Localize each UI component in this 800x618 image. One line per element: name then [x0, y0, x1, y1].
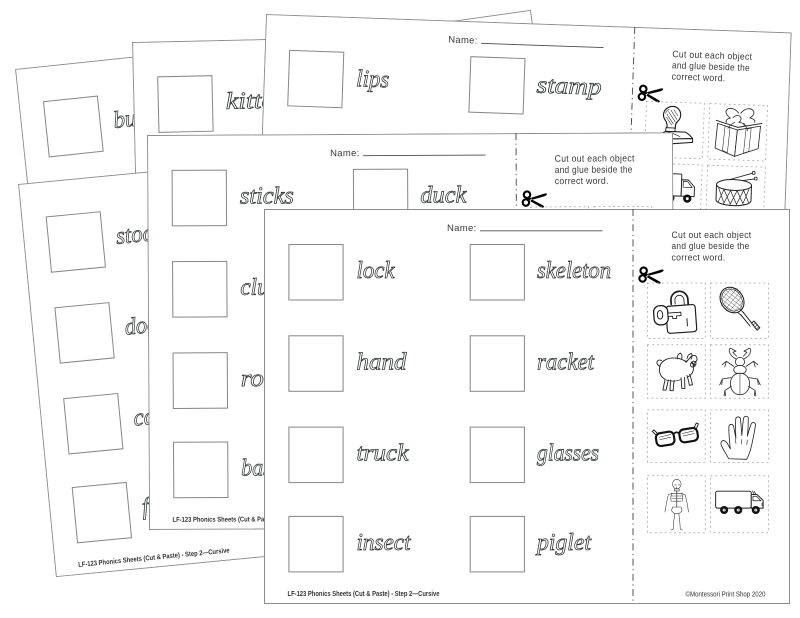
svg-text:and glue beside the: and glue beside the	[554, 164, 632, 175]
svg-text:Cut out each object: Cut out each object	[554, 153, 634, 164]
svg-text:Name:: Name:	[330, 148, 360, 159]
svg-text:and glue beside the: and glue beside the	[671, 241, 749, 252]
svg-text:Name:: Name:	[447, 223, 476, 234]
svg-text:stamp: stamp	[536, 72, 602, 100]
svg-text:lips: lips	[356, 66, 390, 93]
svg-text:LF-123 Phonics Sheets (Cut &: LF-123 Phonics Sheets (Cut & Paste) - St…	[287, 591, 439, 598]
svg-text:skeleton: skeleton	[537, 258, 611, 284]
svg-text:glasses: glasses	[537, 440, 599, 466]
svg-text:correct word.: correct word.	[671, 252, 725, 263]
svg-text:correct word.: correct word.	[671, 71, 725, 84]
svg-text:©Montessori Print Shop 2020: ©Montessori Print Shop 2020	[685, 590, 765, 598]
svg-text:racket: racket	[537, 349, 595, 375]
svg-text:truck: truck	[356, 440, 408, 466]
svg-text:lock: lock	[356, 258, 394, 284]
svg-text:correct word.: correct word.	[554, 175, 608, 186]
svg-text:Cut out each object: Cut out each object	[671, 229, 751, 240]
svg-text:duck: duck	[420, 182, 466, 208]
svg-text:Name:: Name:	[448, 35, 478, 47]
svg-text:piglet: piglet	[535, 529, 592, 555]
svg-text:insect: insect	[356, 529, 411, 555]
svg-text:sticks: sticks	[239, 183, 293, 209]
svg-text:hand: hand	[356, 349, 407, 375]
